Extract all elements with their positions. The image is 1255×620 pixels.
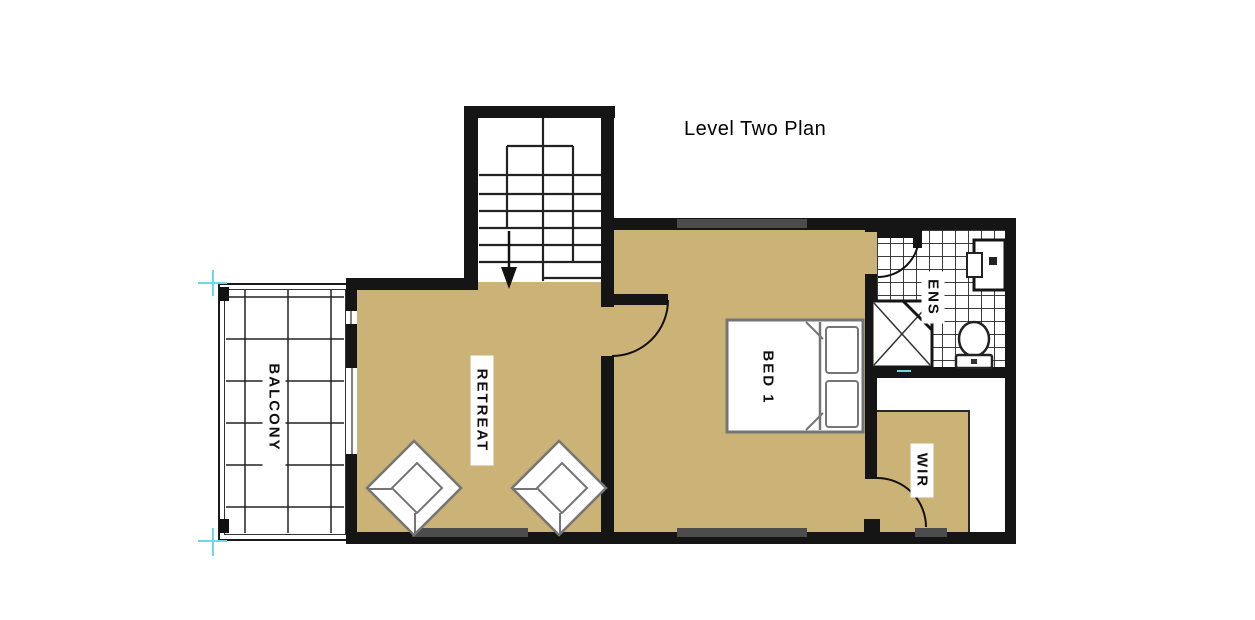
wall-divider-upper bbox=[601, 106, 614, 307]
wall-wir-west bbox=[865, 378, 877, 479]
wall-east bbox=[1005, 218, 1016, 544]
wall-stair-top bbox=[464, 106, 615, 118]
room-label-bed1: BED 1 bbox=[757, 334, 780, 422]
wall-ens-south bbox=[865, 367, 1016, 378]
room-label-ens: ENS bbox=[922, 272, 945, 324]
wall-north-main bbox=[601, 218, 1016, 230]
ens-door-leaf bbox=[877, 229, 922, 238]
wall-door-stub bbox=[601, 294, 668, 305]
balcony-post bbox=[219, 287, 229, 301]
window-bed1-south bbox=[677, 528, 807, 537]
stair-down-arrow-icon bbox=[501, 231, 517, 289]
window-bed1-north bbox=[677, 219, 807, 228]
wall-west-lower bbox=[346, 454, 357, 544]
wall-divider-lower bbox=[601, 356, 614, 544]
wall-wir-door-jamb bbox=[864, 519, 880, 532]
slider-retreat-west bbox=[346, 368, 357, 454]
bed1-floor bbox=[601, 228, 877, 534]
wall-west-mid bbox=[346, 323, 357, 368]
ens-door-jamb bbox=[913, 238, 922, 248]
room-label-retreat: RETREAT bbox=[471, 356, 494, 466]
wall-ens-west-lower bbox=[865, 274, 877, 378]
wall-ens-west-upper bbox=[865, 218, 877, 232]
window-retreat-south bbox=[412, 528, 528, 537]
window-wir-south bbox=[915, 528, 947, 537]
window-retreat-west bbox=[346, 311, 357, 324]
staircase-icon bbox=[479, 118, 601, 281]
wall-retreat-north bbox=[346, 278, 478, 290]
plan-title: Level Two Plan bbox=[684, 118, 826, 141]
wall-stair-left bbox=[464, 106, 478, 286]
room-label-wir: WIR bbox=[911, 444, 934, 498]
balcony-post bbox=[219, 519, 229, 533]
wall-west-upper bbox=[346, 282, 357, 312]
floor-plan: Level Two Plan BALCONY RETREAT BED 1 ENS… bbox=[0, 0, 1255, 620]
room-label-balcony: BALCONY bbox=[263, 348, 286, 468]
